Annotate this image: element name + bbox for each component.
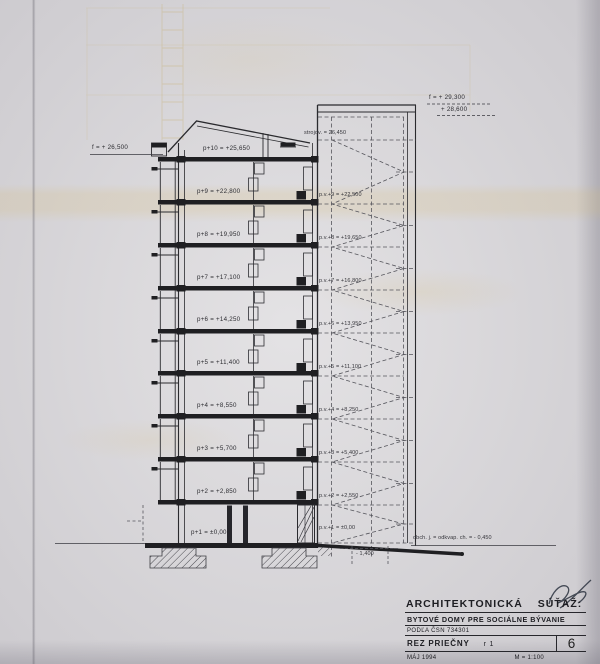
project-title: BYTOVÉ DOMY PRE SOCIÁLNE BÝVANIE <box>405 613 586 626</box>
right-footing <box>262 548 317 568</box>
drawing-name: REZ PRIEČNYr 1 <box>405 636 556 651</box>
floor-label-p5: p+5 = +11,400 <box>197 360 240 366</box>
left-footing <box>150 548 206 568</box>
drawing-name-text: REZ PRIEČNY <box>407 639 470 648</box>
drawing-date: MÁJ 1994 <box>407 655 436 661</box>
machine-room-elevation: strojov. = 26,450 <box>304 131 346 137</box>
gallery-label-pv2: p.v.+2 = +2,550 <box>319 494 358 500</box>
floor-label-p8: p+8 = +19,950 <box>197 232 240 238</box>
bleed-through-ghost-lines <box>86 4 470 140</box>
floor-label-p1: p+1 = ±0,00 <box>191 530 227 536</box>
date-scale-row: MÁJ 1994 M = 1:100 <box>405 652 586 664</box>
drawing-sheet: f = + 26,500 f = + 29,300 + 28,600 stroj… <box>0 0 600 664</box>
floor-label-p7: p+7 = +17,100 <box>197 275 240 281</box>
drawing-title-row: REZ PRIEČNYr 1 6 <box>405 636 586 652</box>
floor-label-p4: p+4 = +8,550 <box>197 403 237 409</box>
drawing-code: r 1 <box>484 641 495 648</box>
standard-reference: PODĽA ČSN 734301 <box>405 626 586 636</box>
floor-label-p10: p+10 = +25,650 <box>203 146 250 152</box>
gallery-label-pv7: p.v.+7 = +16,800 <box>319 279 362 285</box>
gallery-label-pv8: p.v.+8 = +19,650 <box>319 236 362 242</box>
floor-label-p9: p+9 = +22,800 <box>197 189 240 195</box>
truss-bracing <box>332 140 404 543</box>
floor-label-p3: p+3 = +5,700 <box>197 446 237 452</box>
pit-depth-dimension: - 1,400 <box>356 552 374 558</box>
floor-label-p6: p+6 = +14,250 <box>197 317 240 323</box>
drawing-scale: M = 1:100 <box>514 655 544 661</box>
competition-heading: ARCHITEKTONICKÁ SÚŤAŽ: <box>405 597 586 613</box>
title-block: ARCHITEKTONICKÁ SÚŤAŽ: BYTOVÉ DOMY PRE S… <box>405 597 586 664</box>
gallery-label-pv3: p.v.+3 = +5,400 <box>319 451 358 457</box>
section-drawing <box>0 0 600 664</box>
gallery-label-pv6: p.v.+6 = +13,950 <box>319 322 362 328</box>
gallery-label-pv9: p.v.+9 = +22,500 <box>319 193 362 199</box>
floor-label-p2: p+2 = +2,850 <box>197 489 237 495</box>
floor-slabs <box>158 156 319 506</box>
gallery-tower <box>318 105 417 558</box>
gallery-label-pv1: p.v.+1 = ±0,00 <box>319 526 355 532</box>
gallery-label-pv5: p.v.+5 = +11,100 <box>319 365 361 371</box>
tower-top-elevation-2: + 28,600 <box>441 107 467 113</box>
roof-left-elevation: f = + 26,500 <box>92 145 128 151</box>
tower-top-elevation: f = + 29,300 <box>429 95 465 101</box>
entry-level-note: obch. j. = odkvap. ch. = - 0,450 <box>413 536 492 542</box>
ground-floor-details <box>127 505 315 544</box>
gallery-label-pv4: p.v.+4 = +8,250 <box>319 408 358 414</box>
ground-and-footings <box>55 543 464 568</box>
sheet-number: 6 <box>556 636 586 651</box>
